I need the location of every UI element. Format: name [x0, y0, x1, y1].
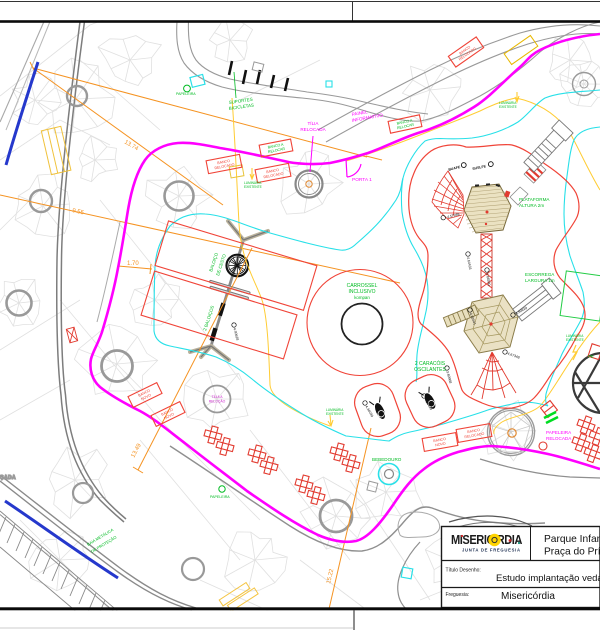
svg-text:BEBEDOURO: BEBEDOURO: [372, 457, 402, 462]
svg-text:ESCORREGA: ESCORREGA: [525, 272, 555, 277]
svg-text:TÍLIA A: TÍLIA A: [212, 395, 224, 399]
svg-text:2 CARACÓIS: 2 CARACÓIS: [415, 360, 446, 367]
svg-text:Título Desenho:: Título Desenho:: [446, 568, 481, 574]
svg-text:TÍLIA: TÍLIA: [308, 120, 320, 126]
svg-text:1.70: 1.70: [127, 261, 139, 267]
svg-text:EXISTENTE: EXISTENTE: [326, 412, 344, 416]
svg-text:Estudo implantação vedação: Estudo implantação vedação: [496, 573, 600, 584]
svg-text:PLATAFORMA: PLATAFORMA: [519, 197, 550, 202]
svg-text:JUNTA DE FREGUESIA: JUNTA DE FREGUESIA: [462, 548, 521, 553]
svg-text:RELOCADA: RELOCADA: [300, 127, 326, 132]
svg-text:PAPELEIRA: PAPELEIRA: [210, 495, 230, 499]
svg-text:PE: PE: [588, 354, 594, 359]
svg-text:EXISTENTE: EXISTENTE: [566, 338, 584, 342]
svg-text:Praça do Príncip: Praça do Príncip: [544, 547, 600, 558]
svg-text:ÇADA: ÇADA: [0, 475, 16, 481]
svg-text:PAPELEIRA: PAPELEIRA: [546, 430, 572, 435]
svg-text:OSCILANTES: OSCILANTES: [414, 367, 446, 373]
svg-text:ALTURA 2m: ALTURA 2m: [519, 203, 544, 208]
svg-text:Parque Infantil: Parque Infantil: [544, 534, 600, 545]
svg-text:Misericórdia: Misericórdia: [501, 591, 555, 602]
svg-text:PAPELEIRA: PAPELEIRA: [176, 92, 196, 96]
svg-text:Freguesia:: Freguesia:: [446, 592, 470, 598]
svg-text:kompan: kompan: [354, 295, 370, 300]
svg-text:LARGURA 1m: LARGURA 1m: [525, 278, 555, 283]
svg-text:RELOCADA: RELOCADA: [546, 436, 572, 441]
svg-text:RELOÇÃO: RELOÇÃO: [209, 399, 226, 404]
svg-text:PORTA 1: PORTA 1: [352, 177, 372, 183]
svg-text:EXISTENTE: EXISTENTE: [499, 105, 517, 109]
svg-text:EXISTENTE: EXISTENTE: [244, 185, 262, 189]
